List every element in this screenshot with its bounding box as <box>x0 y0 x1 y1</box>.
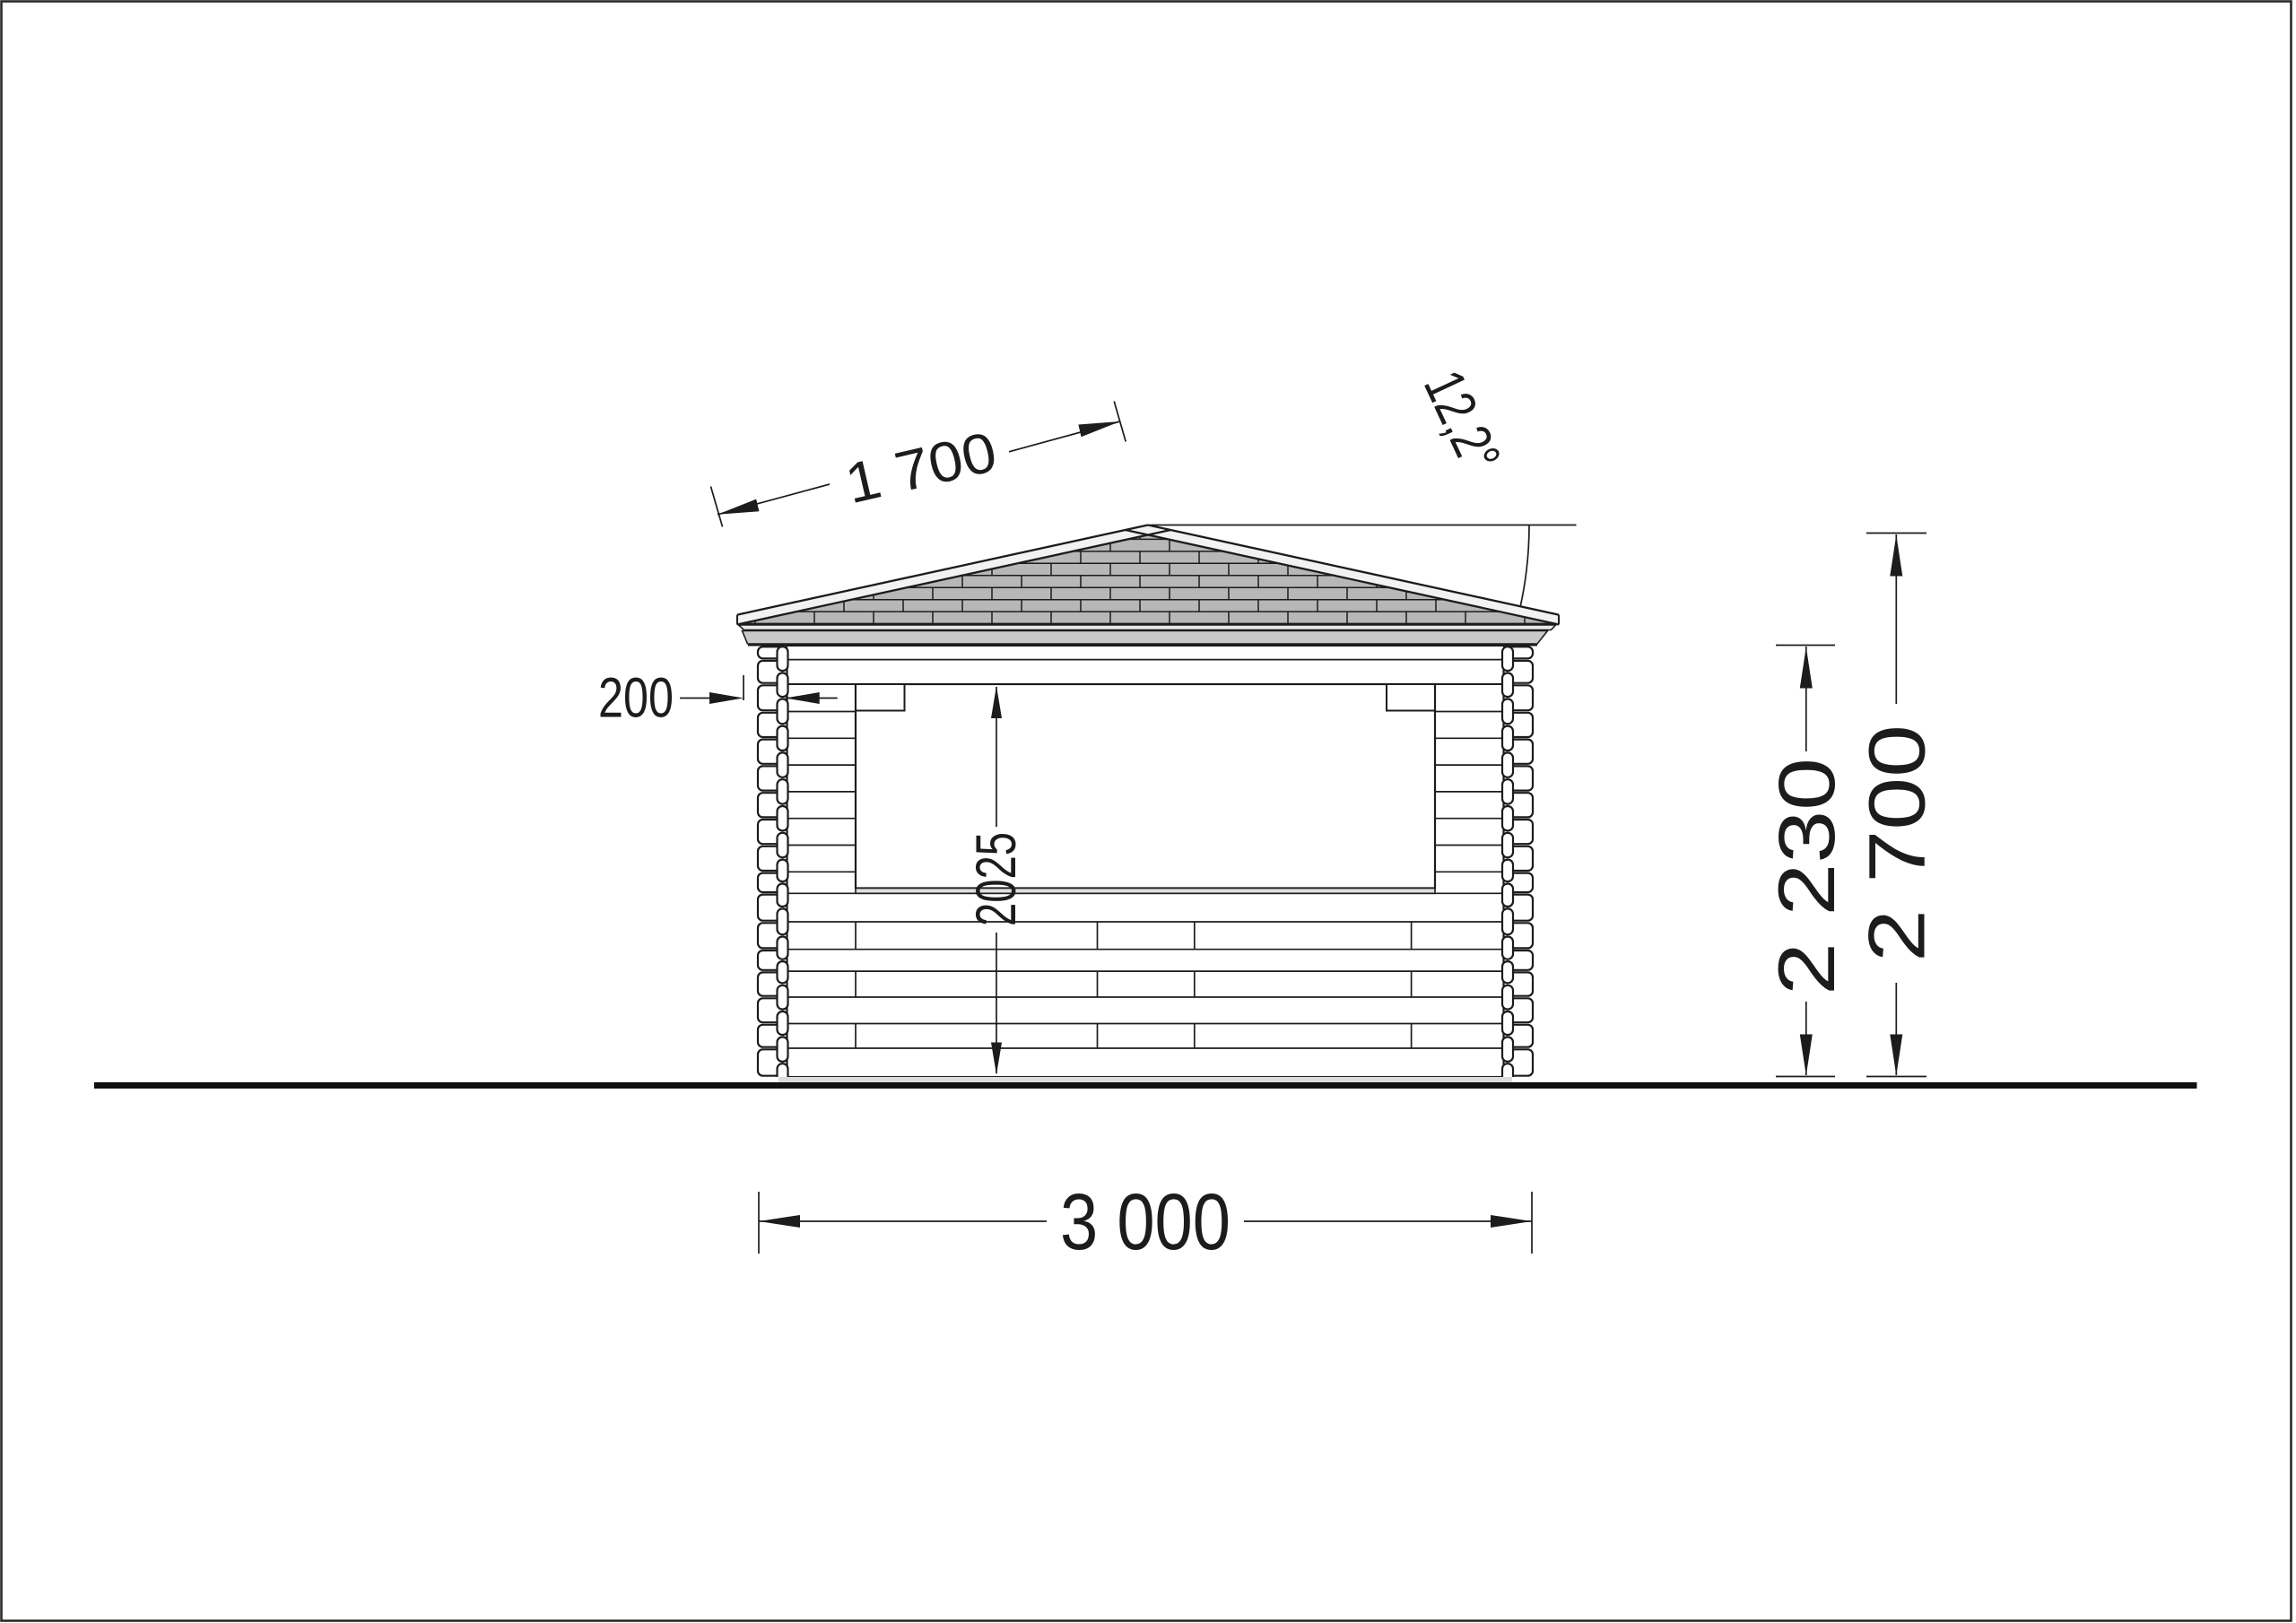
svg-text:2025: 2025 <box>965 832 1028 926</box>
svg-text:2 230: 2 230 <box>1761 758 1851 995</box>
svg-text:2 700: 2 700 <box>1851 725 1941 962</box>
svg-text:3 000: 3 000 <box>1060 1176 1231 1266</box>
svg-text:200: 200 <box>598 667 674 730</box>
